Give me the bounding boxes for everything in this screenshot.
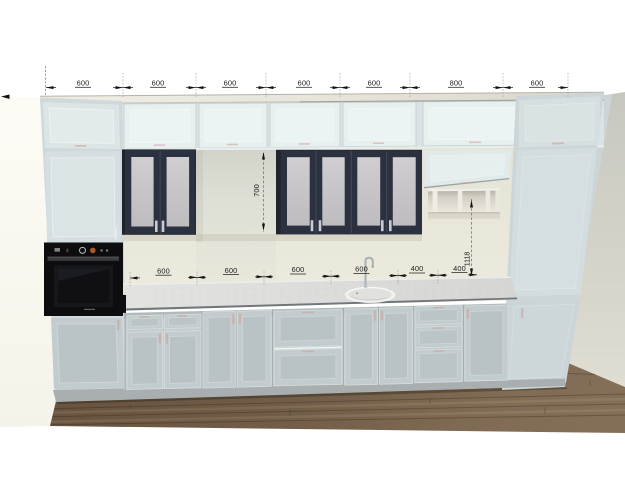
svg-text:600: 600 [355, 265, 368, 274]
svg-text:600: 600 [224, 79, 237, 88]
svg-text:1118: 1118 [465, 252, 472, 267]
svg-text:600: 600 [152, 79, 165, 88]
svg-text:600: 600 [531, 79, 544, 88]
svg-text:800: 800 [450, 79, 463, 88]
svg-text:700: 700 [252, 184, 261, 197]
svg-text:400: 400 [411, 264, 424, 273]
svg-text:600: 600 [225, 266, 238, 275]
svg-text:600: 600 [77, 79, 90, 88]
svg-text:600: 600 [298, 79, 311, 88]
svg-text:600: 600 [157, 266, 170, 275]
svg-text:600: 600 [292, 265, 305, 274]
svg-text:600: 600 [368, 79, 381, 88]
